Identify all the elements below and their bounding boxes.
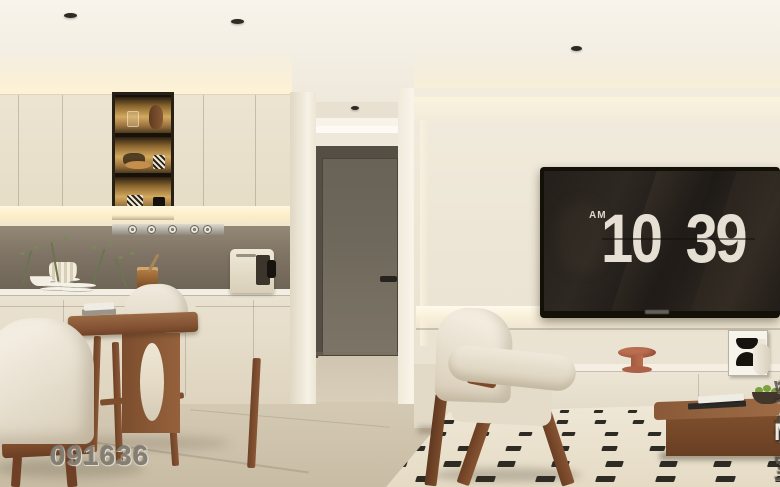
- watermark-model-id: 模型ID: M0085319: [774, 384, 780, 447]
- rug-dash: [628, 410, 638, 413]
- rug-dash: [647, 432, 661, 436]
- door-handle: [380, 276, 397, 282]
- ceiling-spotlight: [231, 19, 244, 24]
- hallway-baseboard: [312, 352, 404, 355]
- plant-leaf: [108, 243, 113, 246]
- plant-leaf: [64, 237, 69, 240]
- rug-dash: [561, 432, 575, 436]
- power-socket: [128, 225, 137, 234]
- tv-brand-logo: [645, 310, 669, 314]
- terracotta-pedestal-bowl: [622, 366, 652, 373]
- dining-table-leg: [122, 333, 180, 433]
- power-track: [112, 224, 224, 235]
- rug-dash: [594, 410, 604, 413]
- plate-stack: [62, 288, 94, 292]
- rug-dash: [601, 446, 618, 451]
- rug-dash: [715, 476, 736, 482]
- plant-leaf: [34, 246, 39, 249]
- rug-dash: [518, 432, 532, 436]
- rug-dash: [655, 476, 676, 482]
- cabinet-seam: [255, 95, 256, 211]
- table-leg-cutout: [140, 343, 164, 421]
- power-socket: [168, 225, 177, 234]
- rug-dash: [556, 420, 568, 424]
- fruit: [763, 385, 771, 392]
- model-id-value: M0085319: [774, 419, 780, 446]
- shelf-checkered-cup: [153, 155, 165, 169]
- rug-dash: [443, 461, 462, 467]
- power-socket: [190, 225, 199, 234]
- coffee-table: [666, 416, 780, 456]
- ceiling-spotlight: [351, 106, 359, 110]
- cabinet-seam: [203, 95, 204, 211]
- ceiling-spotlight: [64, 13, 77, 18]
- hallway-cornice: [306, 133, 402, 147]
- ceiling-spotlight: [571, 46, 582, 51]
- rug-dash: [595, 476, 616, 482]
- plant-leaf: [20, 252, 25, 255]
- shelf-glass: [127, 111, 139, 127]
- rug-dash: [605, 461, 624, 467]
- plant-leaf: [50, 239, 55, 242]
- rug-dash: [505, 446, 522, 451]
- rug-dash: [632, 420, 644, 424]
- rug-dash: [659, 461, 678, 467]
- rug-dash: [649, 446, 666, 451]
- watermark-image-id: 091636: [50, 440, 149, 472]
- hallway-cornice: [302, 126, 402, 133]
- ceiling-cove-light-left: [0, 50, 292, 95]
- interior-door: [322, 158, 398, 356]
- rug-dash: [594, 420, 606, 424]
- display-cabinet: [112, 92, 174, 220]
- power-socket: [147, 225, 156, 234]
- flip-clock-split-line: [602, 238, 755, 240]
- plant-leaf: [92, 246, 97, 249]
- cabinet-seam: [18, 95, 19, 211]
- tv-wall-cove-light: [414, 97, 780, 123]
- rug-dash: [604, 432, 618, 436]
- rug-dash: [713, 461, 732, 467]
- white-vase: [753, 344, 770, 375]
- cabinet-seam: [62, 95, 63, 211]
- shelf-bread: [125, 161, 151, 169]
- plant-leaf: [130, 252, 135, 255]
- coffee-machine-slot: [236, 254, 256, 257]
- foreground-chair-back: [0, 318, 94, 444]
- hallway-floor: [308, 356, 412, 402]
- interior-render: AM 1039: [0, 0, 780, 487]
- plant-leaf: [118, 256, 123, 259]
- fluted-bowl: [49, 262, 77, 283]
- rug-dash: [560, 410, 570, 413]
- coffee-machine-handle: [267, 260, 276, 278]
- power-socket: [203, 225, 212, 234]
- rug-dash: [497, 461, 516, 467]
- hallway-wall-left: [290, 92, 316, 404]
- shelf-vase: [149, 105, 163, 129]
